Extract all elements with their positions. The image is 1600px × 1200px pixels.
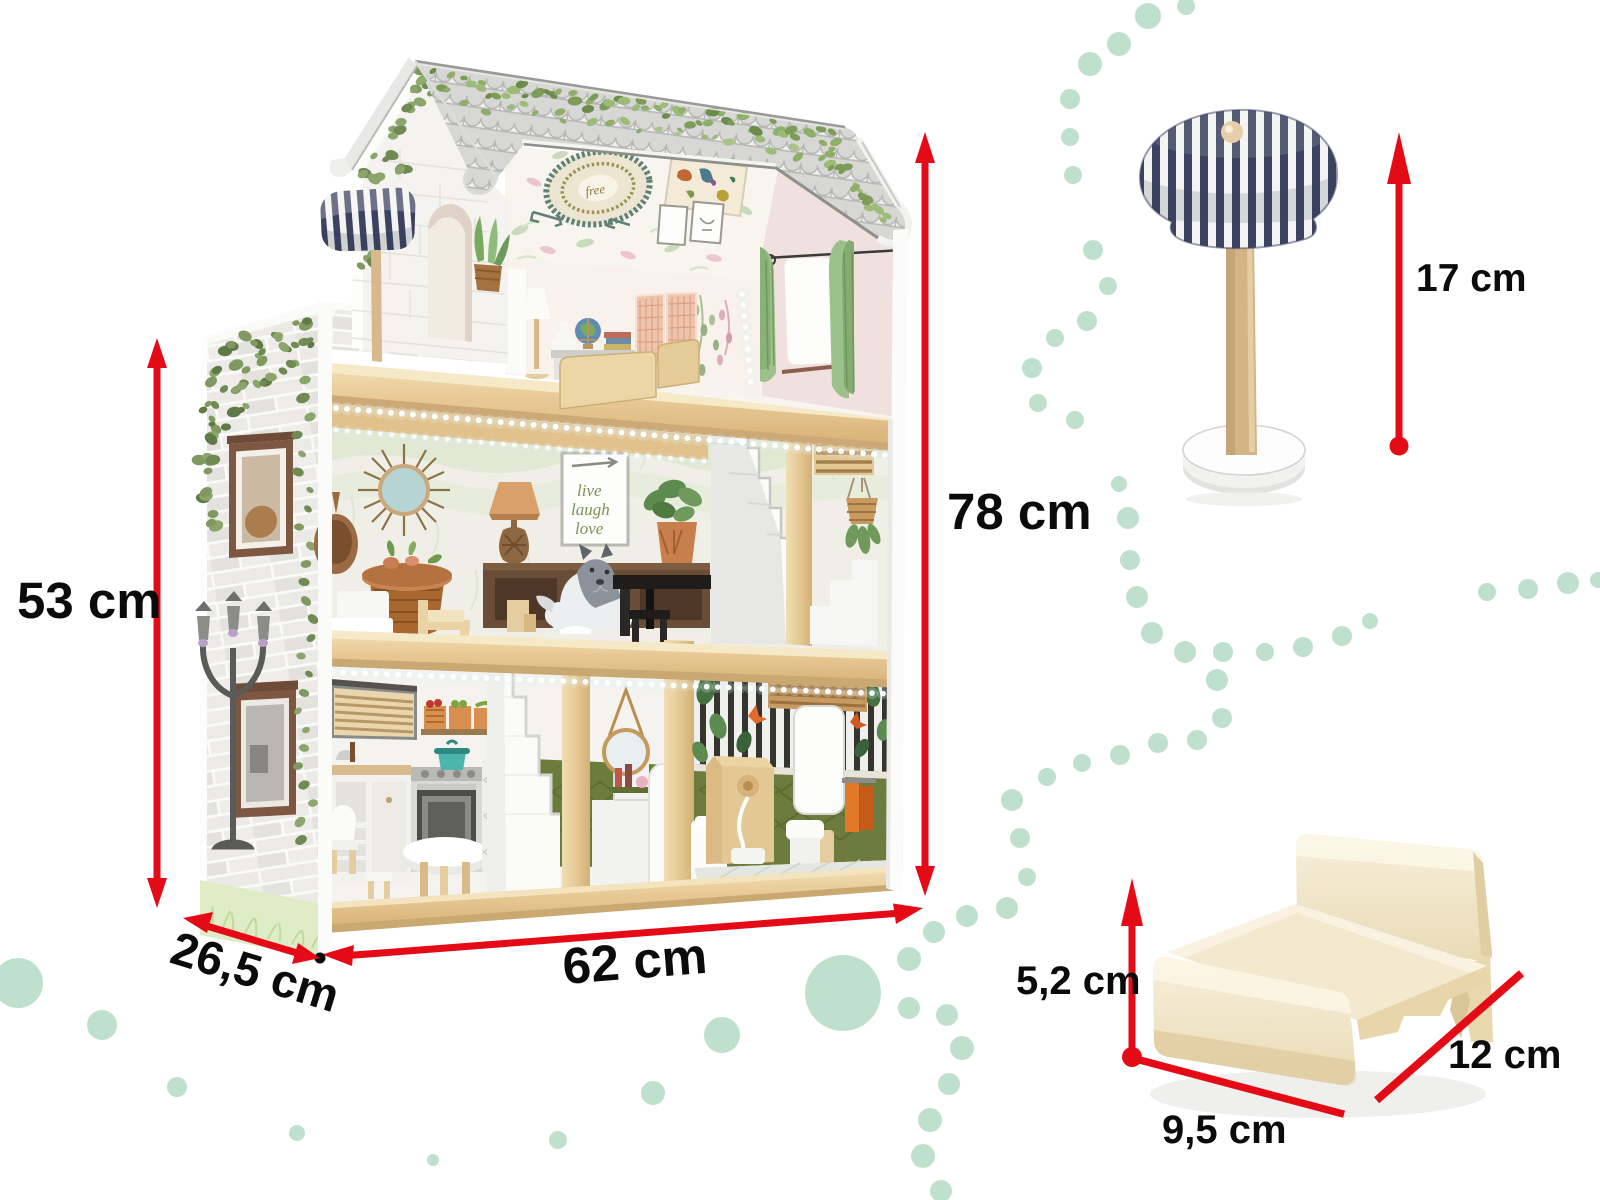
svg-text:78 cm: 78 cm (947, 483, 1092, 540)
svg-text:12 cm: 12 cm (1448, 1033, 1561, 1077)
svg-text:17 cm: 17 cm (1416, 257, 1527, 300)
svg-text:free: free (584, 181, 606, 199)
svg-text:62 cm: 62 cm (560, 927, 709, 995)
svg-text:9,5 cm: 9,5 cm (1162, 1108, 1287, 1152)
svg-text:laugh: laugh (571, 500, 610, 519)
svg-text:5,2 cm: 5,2 cm (1016, 959, 1141, 1003)
svg-text:53 cm: 53 cm (17, 572, 162, 629)
svg-text:live: live (577, 481, 602, 500)
svg-text:love: love (575, 519, 604, 538)
